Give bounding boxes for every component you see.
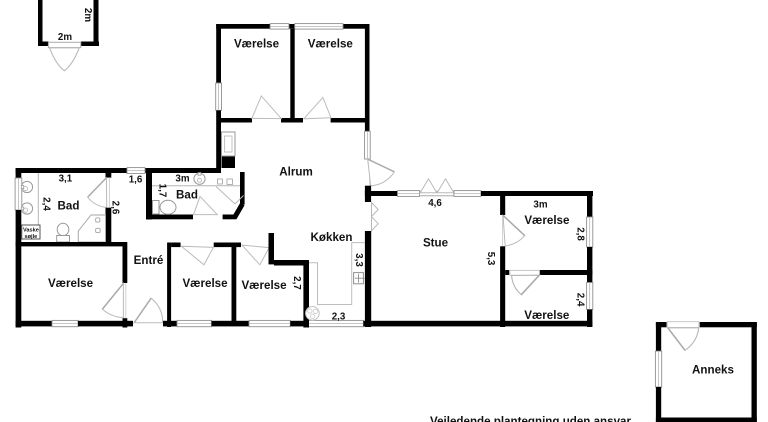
svg-text:2m: 2m [82,8,93,22]
svg-text:Anneks: Anneks [692,363,734,376]
svg-text:Værelse: Værelse [524,309,570,322]
svg-text:1,7: 1,7 [156,184,167,198]
svg-text:Værelse: Værelse [308,38,354,51]
svg-text:3m: 3m [175,173,189,184]
svg-text:2,6: 2,6 [109,201,120,215]
svg-text:5,3: 5,3 [485,252,496,266]
svg-text:2,4: 2,4 [575,293,586,307]
svg-text:2,4: 2,4 [40,197,51,211]
svg-text:3,3: 3,3 [353,253,364,267]
svg-text:3m: 3m [533,199,547,210]
svg-text:søjle: søjle [25,234,38,240]
svg-text:2,7: 2,7 [291,276,302,290]
svg-text:Bad: Bad [176,189,198,202]
svg-text:2m: 2m [58,32,72,43]
svg-text:Værelse: Værelse [524,214,570,227]
svg-text:Værelse: Værelse [48,277,94,290]
svg-text:Entré: Entré [134,254,164,267]
svg-text:4,6: 4,6 [428,198,442,209]
svg-text:Alrum: Alrum [279,166,313,179]
svg-text:3,1: 3,1 [59,173,73,184]
svg-text:Bad: Bad [58,199,80,212]
svg-text:Værelse: Værelse [182,277,228,290]
svg-text:Vejledende plantegning uden an: Vejledende plantegning uden ansvar [430,415,631,422]
svg-text:Værelse: Værelse [241,279,287,292]
svg-text:Stue: Stue [423,237,449,250]
svg-text:Vaske: Vaske [23,228,39,234]
svg-text:2,3: 2,3 [332,312,346,323]
svg-text:Værelse: Værelse [234,38,280,51]
svg-text:1,6: 1,6 [129,175,143,186]
svg-text:2,8: 2,8 [575,227,586,241]
svg-text:Køkken: Køkken [311,231,353,244]
